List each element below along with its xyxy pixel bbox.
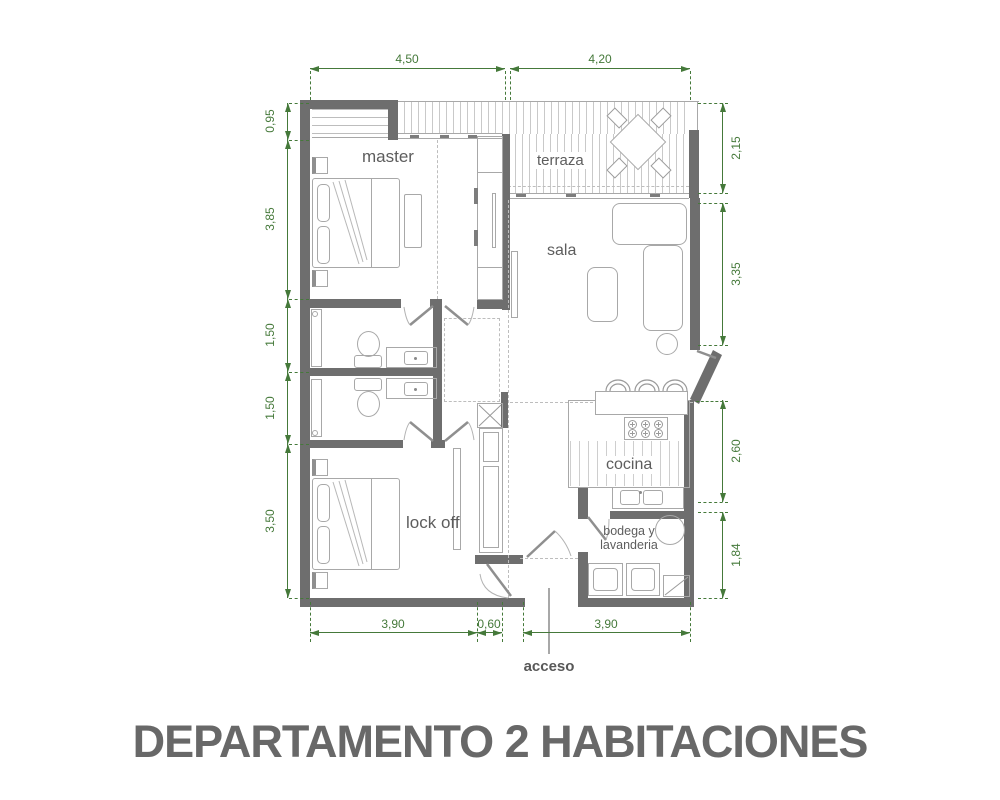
master-bed-folds (333, 180, 367, 264)
dim-label-right-3: 2,60 (729, 429, 743, 473)
lockoff-bed-folds (333, 480, 367, 566)
dim-ext (698, 345, 728, 346)
vestibule-door-leaf (487, 564, 511, 596)
dim-ext (698, 203, 728, 204)
dim-label-left-1: 0,95 (263, 99, 277, 143)
dim-ext (690, 602, 691, 642)
hall-top-door-arc (468, 307, 474, 325)
plan-overlay (0, 0, 1000, 800)
dim-ext (690, 71, 691, 100)
dim-line-left-1 (287, 103, 288, 140)
dim-label-right-4: 1,84 (729, 533, 743, 577)
entrance-door-leaf (527, 531, 555, 557)
dim-line-left-3 (287, 299, 288, 372)
dim-line-left-5 (287, 444, 288, 598)
dim-ext (289, 103, 309, 104)
dim-label-right-2: 3,35 (729, 252, 743, 296)
bath1-door-leaf (410, 306, 433, 325)
dim-ext (310, 71, 311, 100)
hall-bottom-door-leaf (445, 422, 468, 441)
dim-label-bottom-3: 3,90 (576, 617, 636, 631)
plan-title: DEPARTAMENTO 2 HABITACIONES (0, 716, 1000, 768)
hall-bottom-door-arc (468, 422, 474, 440)
dim-ext (523, 602, 524, 642)
room-label-lock-off: lock off (406, 513, 460, 533)
dim-line-bottom-1 (310, 632, 477, 633)
dim-ext (698, 512, 728, 513)
room-label-terraza: terraza (535, 152, 586, 169)
wall-diagonal (690, 350, 722, 404)
entrance-door-arc (555, 531, 571, 556)
room-label-master: master (362, 147, 414, 167)
dim-ext (698, 103, 728, 104)
dim-line-top-1 (310, 68, 505, 69)
dim-label-bottom-2: 0,60 (459, 617, 519, 631)
dim-ext (289, 598, 309, 599)
room-label-sala: sala (547, 242, 576, 260)
dim-label-bottom-1: 3,90 (363, 617, 423, 631)
room-label-acceso: acceso (507, 658, 591, 675)
floor-plan-canvas: 4,50 4,20 0,95 3,85 1,50 1,50 3,50 2,15 … (0, 0, 1000, 800)
dim-ext (289, 299, 309, 300)
bar-stools (606, 380, 687, 391)
dim-ext (502, 602, 503, 642)
dim-line-top-2 (510, 68, 690, 69)
dim-ext (505, 71, 506, 100)
dim-line-bottom-2 (477, 632, 502, 633)
dim-line-right-2 (722, 203, 723, 345)
room-label-bodega-line1: bodega y (598, 524, 660, 538)
dim-ext (698, 502, 728, 503)
dim-ext (477, 602, 478, 642)
dim-ext (696, 401, 728, 402)
dim-label-right-1: 2,15 (729, 126, 743, 170)
dim-line-right-3 (722, 400, 723, 502)
dim-ext (289, 140, 309, 141)
dim-label-left-4: 1,50 (263, 386, 277, 430)
dim-line-left-2 (287, 140, 288, 299)
dim-label-top-2: 4,20 (570, 52, 630, 66)
dim-line-right-4 (722, 512, 723, 598)
dim-ext (289, 372, 309, 373)
dim-label-left-2: 3,85 (263, 197, 277, 241)
room-label-cocina: cocina (604, 456, 654, 474)
dim-ext (698, 193, 728, 194)
dim-line-bottom-3 (523, 632, 690, 633)
bath2-door-leaf (410, 422, 433, 441)
dim-label-left-3: 1,50 (263, 313, 277, 357)
hall-top-door-leaf (445, 306, 468, 325)
dim-label-left-5: 3,50 (263, 499, 277, 543)
room-label-bodega-line2: lavanderia (594, 538, 664, 552)
dim-ext (289, 444, 309, 445)
corner-shelf-diagonal (665, 577, 688, 595)
dim-line-left-4 (287, 372, 288, 444)
duct-x-mark (479, 405, 501, 426)
dim-line-right-1 (722, 103, 723, 193)
dim-ext (310, 602, 311, 642)
dim-label-top-1: 4,50 (377, 52, 437, 66)
dim-ext (698, 598, 728, 599)
bath2-door-arc (404, 422, 410, 440)
dim-ext (510, 71, 511, 100)
bath1-door-arc (404, 307, 410, 325)
